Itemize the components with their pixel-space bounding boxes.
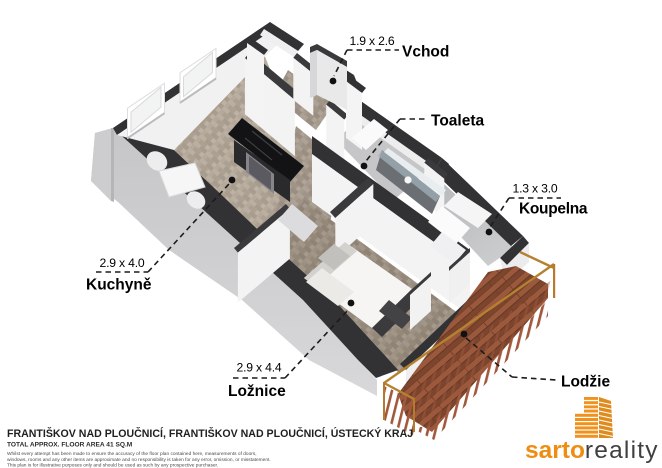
svg-text:Lodžie: Lodžie	[561, 374, 610, 391]
svg-text:Vchod: Vchod	[402, 44, 449, 61]
svg-text:FRANTIŠKOV NAD PLOUČNICÍ, FRAN: FRANTIŠKOV NAD PLOUČNICÍ, FRANTIŠKOV NAD…	[7, 427, 413, 440]
svg-text:sartoreality: sartoreality	[525, 437, 659, 464]
svg-text:2.9 x 4.0: 2.9 x 4.0	[100, 256, 145, 270]
svg-text:windows, rooms and any other i: windows, rooms and any other items are a…	[7, 457, 271, 463]
svg-text:Whilst every attempt has been: Whilst every attempt has been made to en…	[7, 451, 257, 457]
svg-text:1.9 x 2.6: 1.9 x 2.6	[350, 34, 395, 48]
svg-text:2.9 x 4.4: 2.9 x 4.4	[237, 361, 282, 375]
svg-text:Ložnice: Ložnice	[228, 383, 286, 400]
svg-text:TOTAL APPROX. FLOOR AREA 41 SQ: TOTAL APPROX. FLOOR AREA 41 SQ.M	[7, 442, 133, 449]
svg-text:Toaleta: Toaleta	[431, 113, 484, 130]
svg-text:Koupelna: Koupelna	[519, 201, 588, 218]
svg-text:Kuchyně: Kuchyně	[86, 277, 152, 294]
svg-text:This plan is for illustrative: This plan is for illustrative purposes o…	[7, 463, 218, 468]
svg-text:1.3 x 3.0: 1.3 x 3.0	[513, 182, 558, 196]
